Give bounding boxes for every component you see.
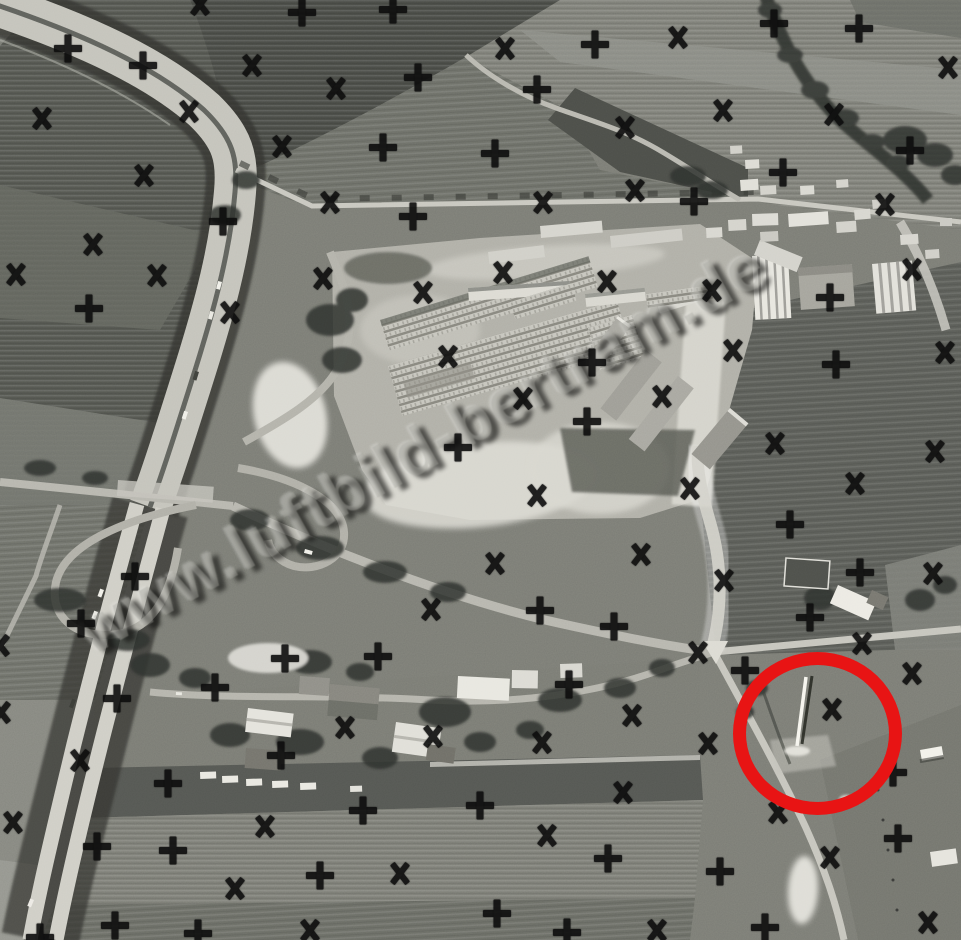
grain-overlay [0,0,961,940]
aerial-photograph: www.luftbild-bertram.de [0,0,961,940]
aerial-photo-canvas [0,0,961,940]
